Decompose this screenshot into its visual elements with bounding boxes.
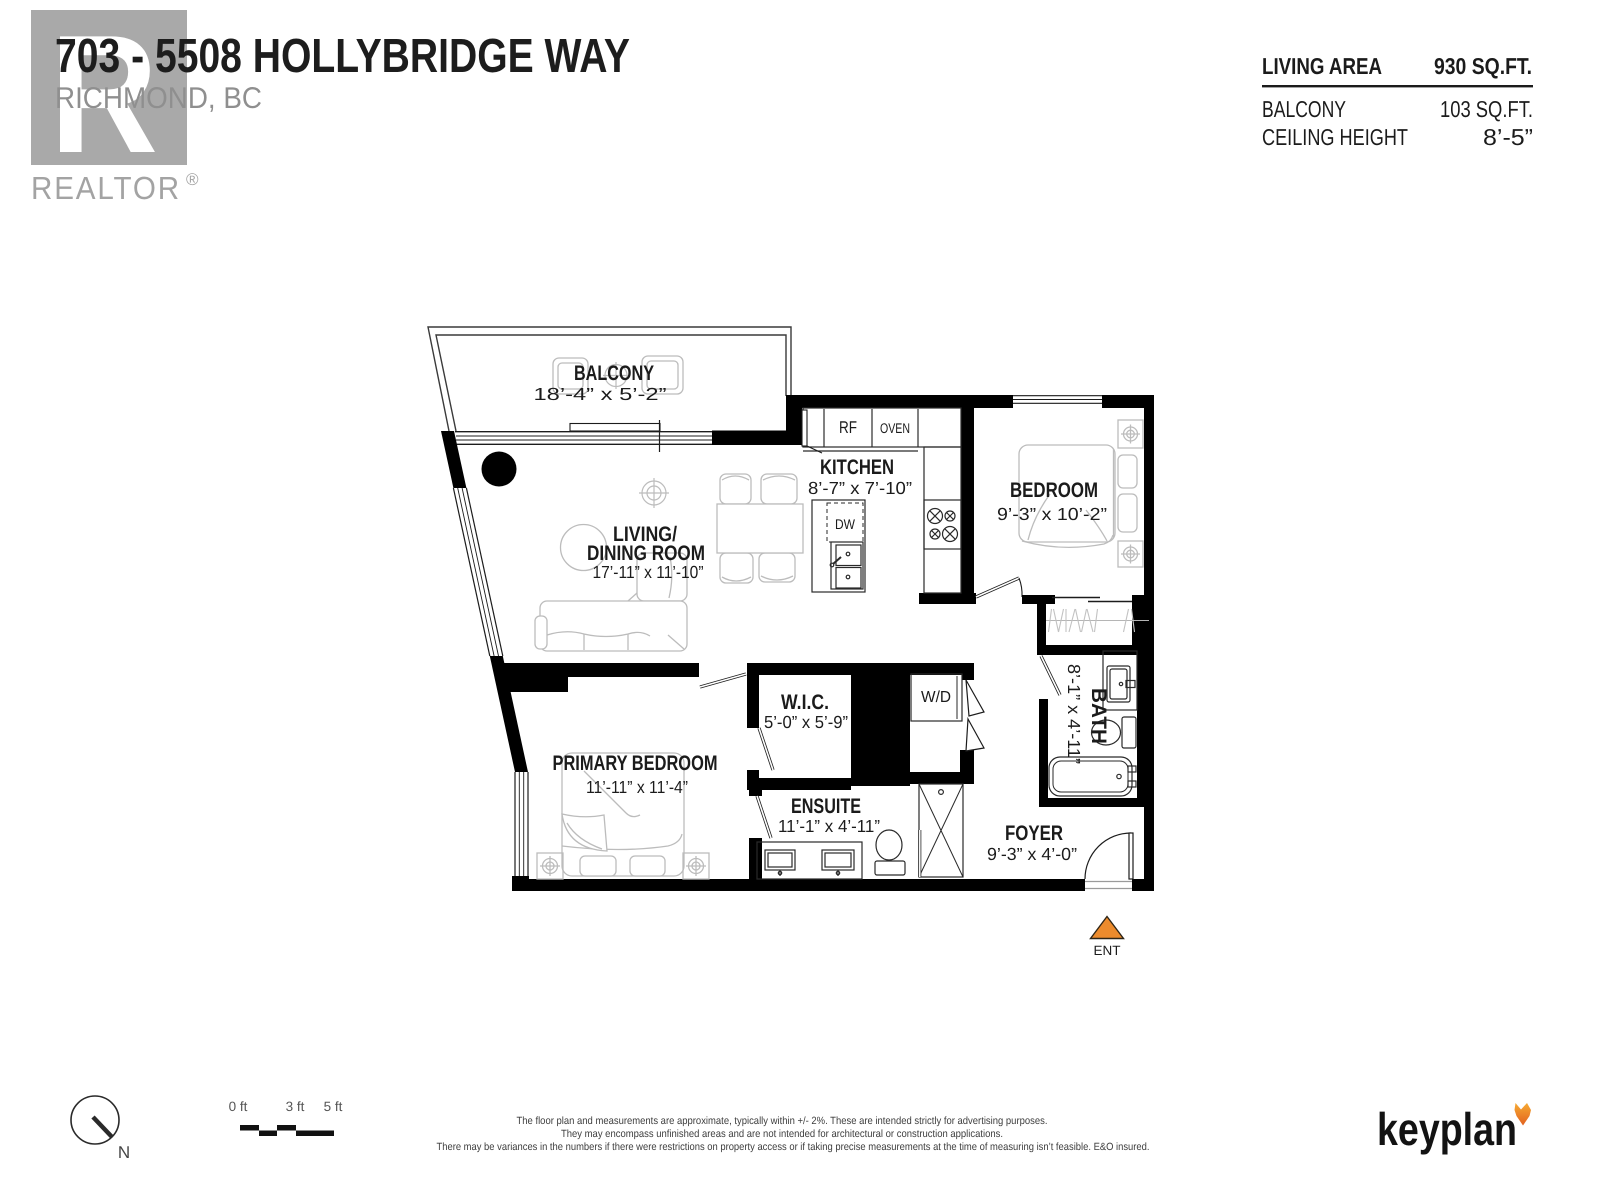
svg-text:REALTOR: REALTOR [31,170,181,206]
svg-text:11’-11” x 11’-4”: 11’-11” x 11’-4” [586,777,688,797]
svg-text:OVEN: OVEN [880,420,910,436]
svg-text:11’-1” x 4’-11”: 11’-1” x 4’-11” [778,816,880,836]
svg-text:BEDROOM: BEDROOM [1010,479,1098,502]
svg-text:FOYER: FOYER [1005,822,1063,845]
svg-text:18’-4” x 5’-2”: 18’-4” x 5’-2” [534,384,667,404]
svg-text:W/D: W/D [921,689,951,706]
svg-text:8’-7” x 7’-10”: 8’-7” x 7’-10” [808,478,912,498]
svg-text:5’-0” x 5’-9”: 5’-0” x 5’-9” [764,712,848,732]
svg-text:3 ft: 3 ft [286,1099,305,1114]
svg-text:BATH: BATH [1087,688,1110,744]
svg-text:9’-3” x 10’-2”: 9’-3” x 10’-2” [997,504,1107,524]
svg-text:They may encompass unfinished: They may encompass unfinished areas and … [561,1128,1003,1140]
svg-text:keyplan: keyplan [1377,1103,1517,1155]
svg-text:W.I.C.: W.I.C. [781,691,829,714]
svg-text:DW: DW [835,516,856,532]
svg-text:17’-11” x 11’-10”: 17’-11” x 11’-10” [593,562,704,582]
svg-text:BALCONY: BALCONY [1262,96,1346,122]
svg-text:103 SQ.FT.: 103 SQ.FT. [1440,96,1533,122]
svg-text:RF: RF [839,418,857,437]
svg-text:KITCHEN: KITCHEN [820,456,894,479]
svg-text:BALCONY: BALCONY [574,362,654,385]
svg-text:930 SQ.FT.: 930 SQ.FT. [1434,53,1532,79]
svg-text:PRIMARY BEDROOM: PRIMARY BEDROOM [553,752,718,775]
svg-text:There may be variances in the: There may be variances in the numbers if… [437,1141,1150,1153]
svg-text:8’-1” x 4’-11”: 8’-1” x 4’-11” [1064,664,1084,764]
svg-text:703 - 5508 HOLLYBRIDGE WAY: 703 - 5508 HOLLYBRIDGE WAY [55,30,630,83]
svg-text:ENSUITE: ENSUITE [791,795,861,818]
svg-text:9’-3” x 4’-0”: 9’-3” x 4’-0” [987,844,1077,864]
svg-text:CEILING HEIGHT: CEILING HEIGHT [1262,124,1408,150]
svg-text:ENT: ENT [1094,943,1121,958]
svg-text:8’-5”: 8’-5” [1483,124,1533,150]
svg-text:N: N [118,1143,130,1162]
svg-text:5 ft: 5 ft [324,1099,343,1114]
svg-text:RICHMOND, BC: RICHMOND, BC [55,82,262,115]
svg-text:LIVING AREA: LIVING AREA [1262,53,1382,79]
svg-text:The floor plan and measurement: The floor plan and measurements are appr… [517,1115,1048,1127]
svg-text:0 ft: 0 ft [229,1099,248,1114]
svg-text:®: ® [186,170,199,189]
